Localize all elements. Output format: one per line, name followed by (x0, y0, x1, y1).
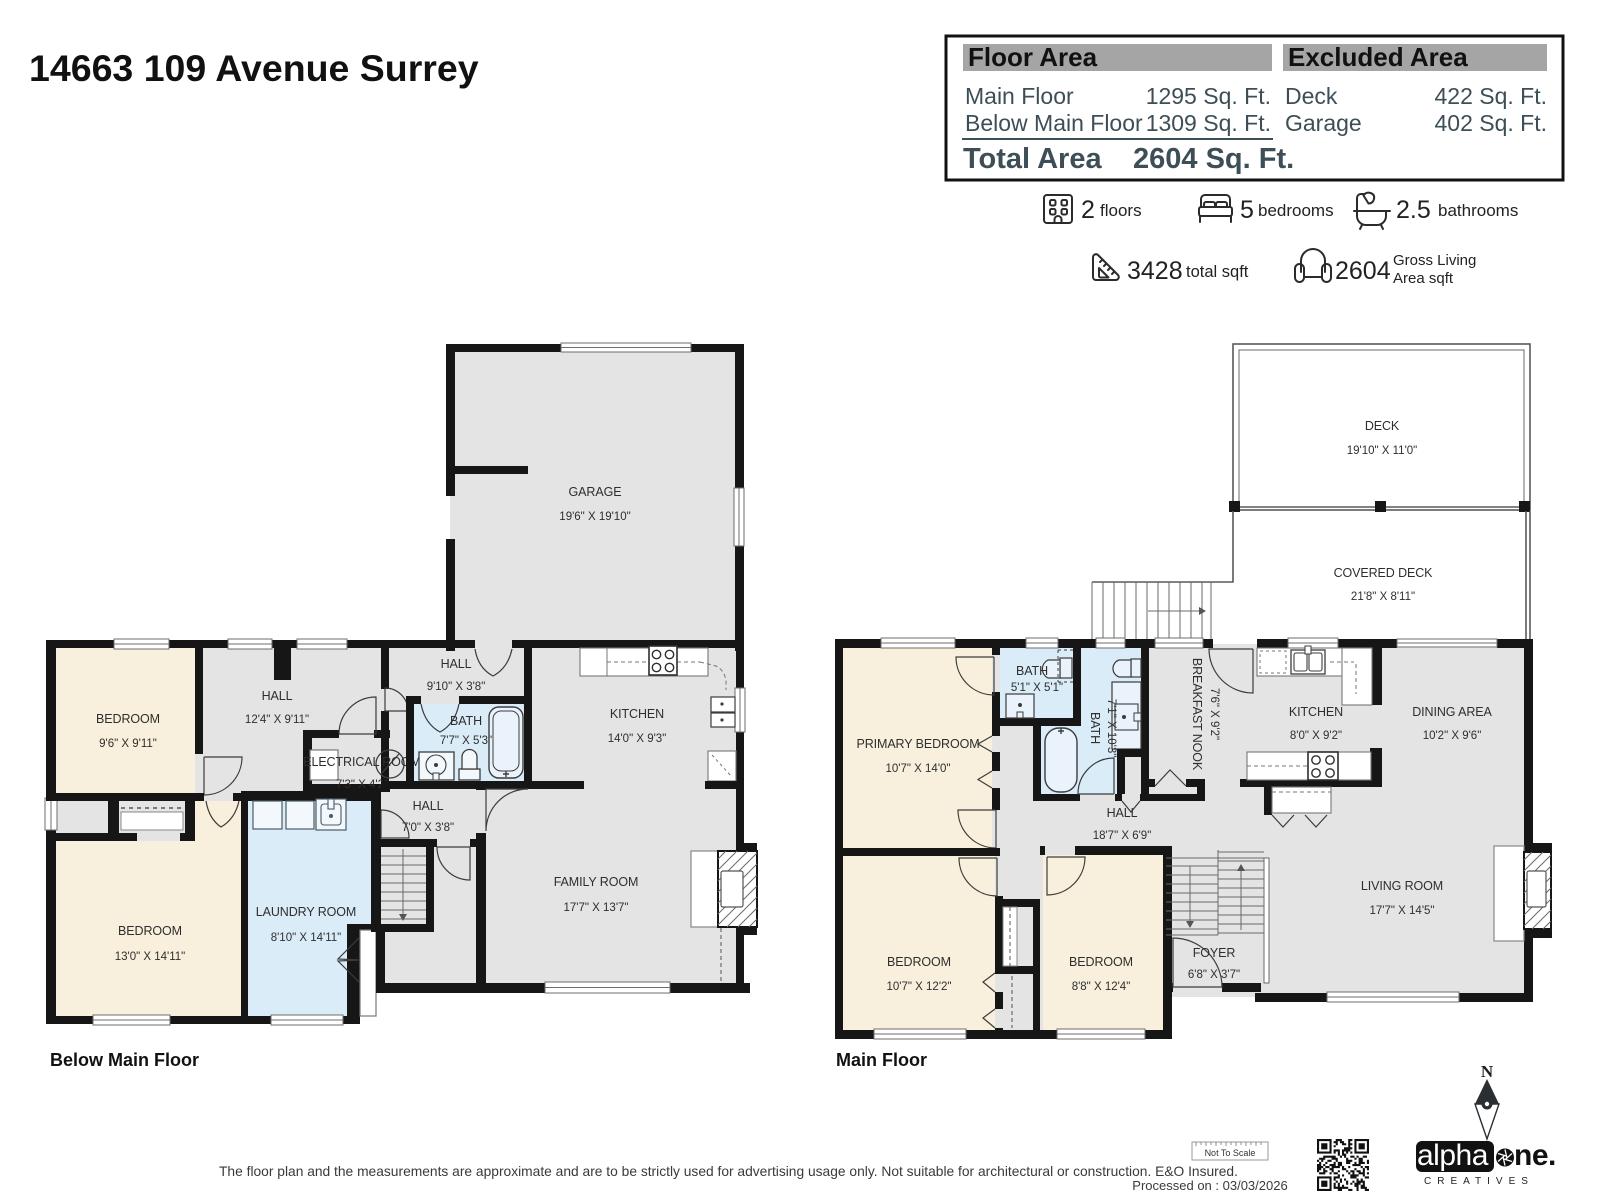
svg-text:LAUNDRY ROOM: LAUNDRY ROOM (256, 905, 356, 919)
svg-text:Below Main Floor: Below Main Floor (50, 1050, 199, 1070)
svg-text:14663 109 Avenue Surrey: 14663 109 Avenue Surrey (29, 47, 479, 89)
svg-text:9'10" X 3'8": 9'10" X 3'8" (427, 681, 486, 693)
svg-text:17'7" X 14'5": 17'7" X 14'5" (1370, 905, 1435, 917)
svg-text:KITCHEN: KITCHEN (1289, 705, 1343, 719)
svg-text:Excluded Area: Excluded Area (1288, 42, 1468, 72)
svg-text:alpha: alpha (1417, 1139, 1489, 1172)
svg-text:DECK: DECK (1365, 419, 1400, 433)
svg-text:floors: floors (1100, 201, 1142, 220)
svg-text:BATH: BATH (450, 714, 482, 728)
svg-text:9'6" X 9'11": 9'6" X 9'11" (99, 738, 157, 750)
svg-text:2: 2 (1081, 196, 1095, 224)
svg-text:GARAGE: GARAGE (569, 485, 622, 499)
svg-text:COVERED DECK: COVERED DECK (1334, 566, 1434, 580)
svg-text:bathrooms: bathrooms (1438, 201, 1518, 220)
svg-text:402 Sq. Ft.: 402 Sq. Ft. (1434, 110, 1547, 136)
svg-text:14'0" X 9'3": 14'0" X 9'3" (608, 733, 667, 745)
svg-text:FAMILY ROOM: FAMILY ROOM (554, 875, 639, 889)
svg-text:7'1" X 10'3": 7'1" X 10'3" (1105, 699, 1117, 758)
svg-text:10'7" X 12'2": 10'7" X 12'2" (887, 981, 952, 993)
svg-text:BATH: BATH (1016, 664, 1048, 678)
svg-text:8'10" X 14'11": 8'10" X 14'11" (271, 932, 342, 944)
svg-text:N: N (1481, 1062, 1494, 1081)
svg-text:2604: 2604 (1335, 257, 1391, 285)
svg-text:BEDROOM: BEDROOM (1069, 955, 1133, 969)
svg-text:13'0" X 14'11": 13'0" X 14'11" (115, 951, 186, 963)
svg-text:Processed on : 03/03/2026: Processed on : 03/03/2026 (1132, 1178, 1287, 1193)
svg-text:Below Main Floor: Below Main Floor (965, 110, 1143, 136)
svg-text:21'8" X 8'11": 21'8" X 8'11" (1351, 591, 1415, 603)
svg-text:2.5: 2.5 (1396, 196, 1431, 224)
svg-text:HALL: HALL (413, 799, 444, 813)
svg-text:Gross Living: Gross Living (1393, 252, 1476, 269)
svg-text:BATH: BATH (1088, 712, 1102, 744)
svg-text:Main Floor: Main Floor (836, 1050, 927, 1070)
svg-text:2604 Sq. Ft.: 2604 Sq. Ft. (1133, 143, 1294, 175)
svg-text:KITCHEN: KITCHEN (610, 707, 664, 721)
svg-text:10'7" X 14'0": 10'7" X 14'0" (886, 763, 951, 775)
svg-text:BEDROOM: BEDROOM (96, 712, 160, 726)
svg-text:7'7" X 5'3": 7'7" X 5'3" (440, 735, 492, 747)
svg-text:5: 5 (1240, 196, 1254, 224)
svg-text:ne.: ne. (1514, 1139, 1556, 1172)
svg-text:1295 Sq. Ft.: 1295 Sq. Ft. (1146, 83, 1271, 109)
svg-text:Not To Scale: Not To Scale (1205, 1148, 1256, 1158)
svg-text:BEDROOM: BEDROOM (118, 924, 182, 938)
svg-text:HALL: HALL (441, 657, 472, 671)
svg-text:1309 Sq. Ft.: 1309 Sq. Ft. (1146, 110, 1271, 136)
svg-text:18'7" X 6'9": 18'7" X 6'9" (1093, 830, 1152, 842)
svg-text:Total Area: Total Area (963, 143, 1102, 175)
svg-text:DINING AREA: DINING AREA (1412, 705, 1492, 719)
svg-text:6'8" X 3'7": 6'8" X 3'7" (1188, 969, 1240, 981)
svg-text:Area sqft: Area sqft (1393, 270, 1454, 287)
svg-text:bedrooms: bedrooms (1258, 201, 1334, 220)
svg-text:HALL: HALL (262, 689, 293, 703)
svg-text:8'8" X 12'4": 8'8" X 12'4" (1072, 981, 1131, 993)
svg-text:total sqft: total sqft (1186, 263, 1249, 281)
svg-text:HALL: HALL (1107, 806, 1138, 820)
svg-text:7'6" X 9'2": 7'6" X 9'2" (1208, 688, 1220, 740)
svg-text:BREAKFAST NOOK: BREAKFAST NOOK (1190, 658, 1204, 771)
svg-text:Main Floor: Main Floor (965, 83, 1074, 109)
svg-text:7'0" X 3'8": 7'0" X 3'8" (402, 822, 454, 834)
svg-text:10'2" X 9'6": 10'2" X 9'6" (1423, 730, 1482, 742)
svg-text:12'4" X 9'11": 12'4" X 9'11" (245, 714, 309, 726)
svg-text:Floor Area: Floor Area (968, 42, 1098, 72)
svg-text:422 Sq. Ft.: 422 Sq. Ft. (1434, 83, 1547, 109)
svg-text:The floor plan and the measure: The floor plan and the measurements are … (219, 1164, 1238, 1179)
svg-text:ELECTRICAL ROOM: ELECTRICAL ROOM (303, 755, 421, 769)
svg-text:7'3" X 4'2": 7'3" X 4'2" (336, 779, 388, 791)
svg-text:PRIMARY BEDROOM: PRIMARY BEDROOM (856, 737, 979, 751)
svg-text:Garage: Garage (1285, 110, 1362, 136)
svg-text:19'10" X 11'0": 19'10" X 11'0" (1347, 445, 1418, 457)
svg-text:CREATIVES: CREATIVES (1424, 1176, 1534, 1187)
svg-text:17'7" X 13'7": 17'7" X 13'7" (564, 902, 629, 914)
svg-text:Deck: Deck (1285, 83, 1338, 109)
svg-text:3428: 3428 (1127, 257, 1183, 285)
svg-text:FOYER: FOYER (1193, 946, 1236, 960)
svg-text:LIVING ROOM: LIVING ROOM (1361, 879, 1443, 893)
svg-text:8'0" X 9'2": 8'0" X 9'2" (1290, 730, 1342, 742)
svg-text:BEDROOM: BEDROOM (887, 955, 951, 969)
svg-text:19'6" X 19'10": 19'6" X 19'10" (559, 511, 630, 523)
svg-text:5'1" X 5'1": 5'1" X 5'1" (1011, 682, 1063, 694)
